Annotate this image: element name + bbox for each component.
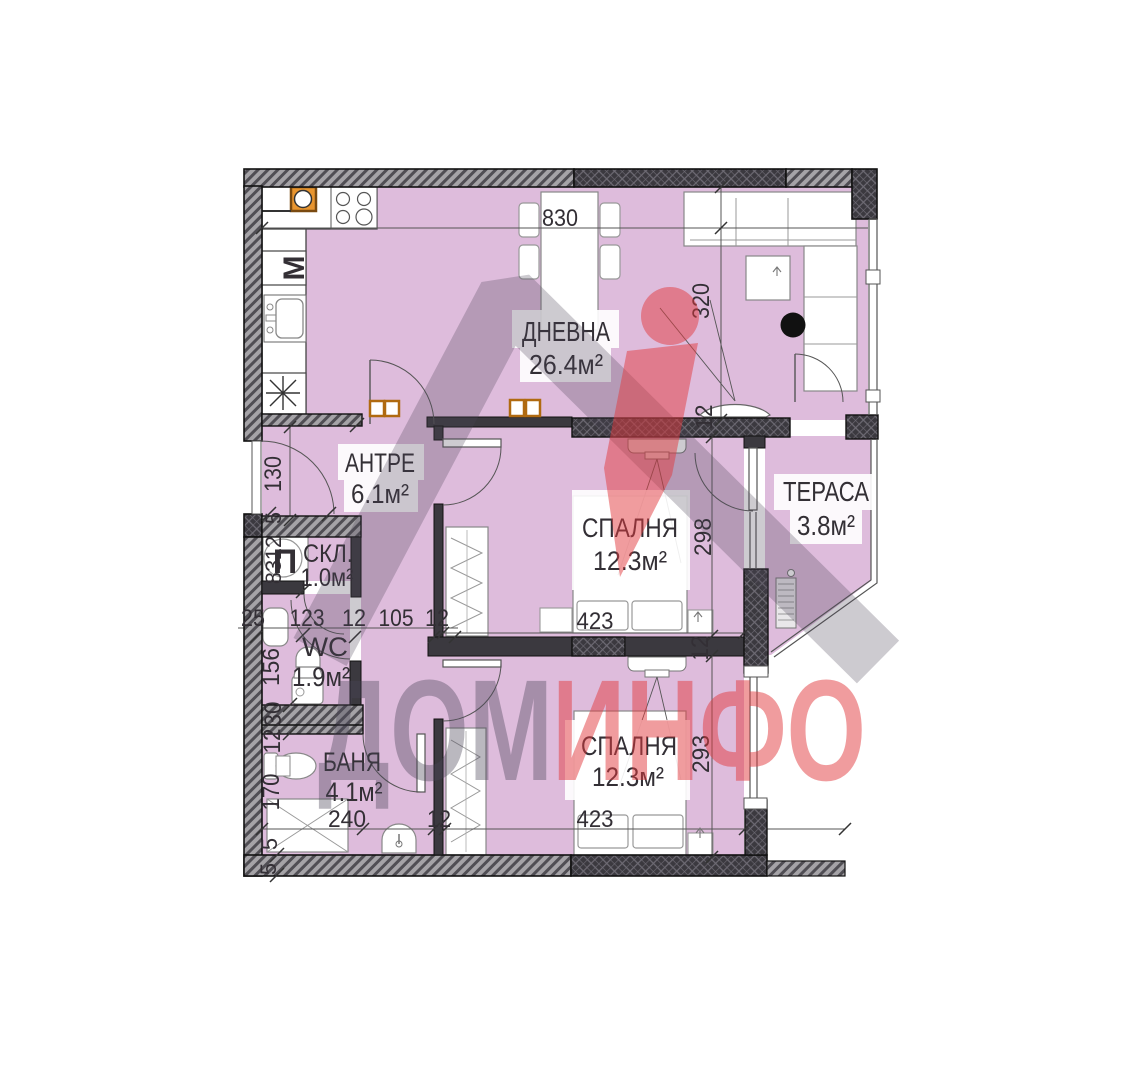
svg-text:12: 12 — [259, 729, 286, 754]
svg-text:5: 5 — [257, 838, 282, 850]
svg-text:830: 830 — [542, 205, 578, 232]
svg-text:30: 30 — [260, 702, 287, 727]
svg-text:170: 170 — [258, 774, 285, 811]
svg-text:130: 130 — [260, 456, 287, 492]
svg-text:3.8м²: 3.8м² — [797, 510, 855, 541]
svg-text:M: M — [278, 256, 311, 281]
svg-text:423: 423 — [577, 608, 614, 635]
svg-text:ДОМ: ДОМ — [318, 650, 553, 811]
svg-text:12: 12 — [691, 405, 718, 430]
svg-text:105: 105 — [379, 605, 414, 632]
svg-text:ИНФО: ИНФО — [552, 650, 866, 811]
svg-text:5: 5 — [256, 863, 281, 875]
svg-text:5: 5 — [261, 512, 286, 524]
svg-text:12: 12 — [425, 605, 449, 632]
svg-text:25: 25 — [241, 605, 265, 632]
svg-text:156: 156 — [258, 648, 285, 686]
svg-text:ТЕРАСА: ТЕРАСА — [783, 476, 869, 507]
svg-text:12: 12 — [261, 536, 286, 560]
svg-text:83: 83 — [261, 560, 286, 584]
